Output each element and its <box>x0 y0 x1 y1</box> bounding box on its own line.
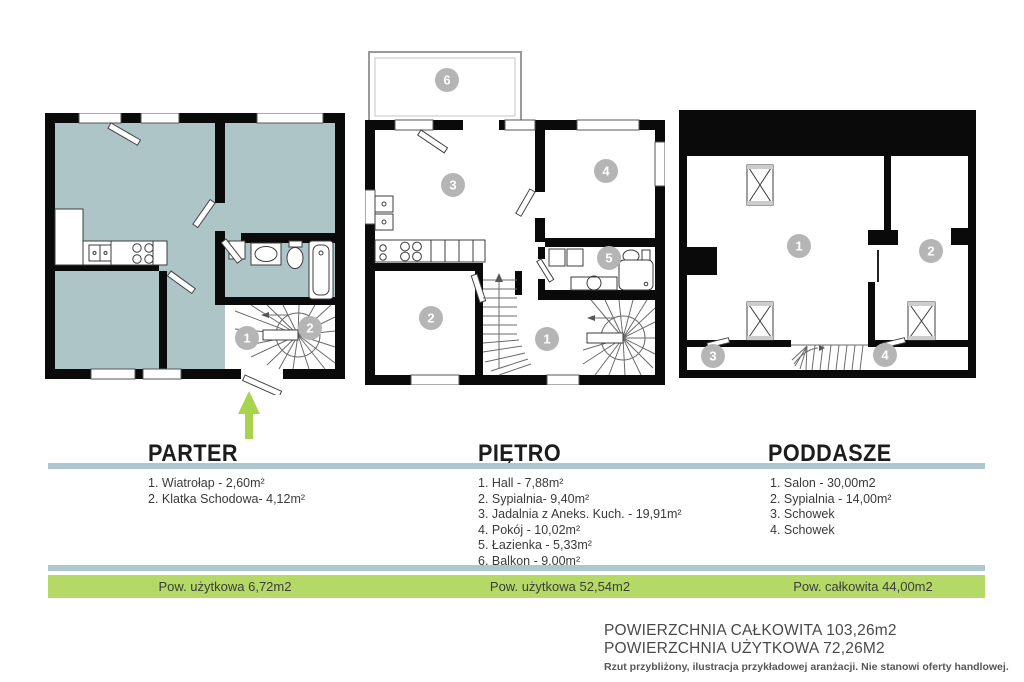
svg-text:2: 2 <box>306 321 313 336</box>
total-area-line: POWIERZCHNIA CAŁKOWITA 103,26m2 <box>604 622 1009 640</box>
room-list-item: 4. Schowek <box>770 523 892 539</box>
poddasze-plan-drawing: 1 2 3 4 <box>679 110 976 378</box>
room-marker-1: 1 <box>535 327 559 351</box>
room-list-item: 4. Pokój - 10,02m² <box>478 523 682 539</box>
divider-bar-top <box>48 463 985 469</box>
room-marker-1: 1 <box>235 326 259 350</box>
svg-text:3: 3 <box>449 178 456 193</box>
room-marker-2: 2 <box>919 239 943 263</box>
room-list-item: 5. Łazienka - 5,33m² <box>478 538 682 554</box>
room-list-item: 3. Schowek <box>770 507 892 523</box>
divider-bar-bottom <box>48 565 985 571</box>
disclaimer-text: Rzut przybliżony, ilustracja przykładowe… <box>604 661 1009 673</box>
totals-block: POWIERZCHNIA CAŁKOWITA 103,26m2 POWIERZC… <box>604 622 1009 673</box>
usable-area-line: POWIERZCHNIA UŻYTKOWA 72,26M2 <box>604 640 1009 658</box>
room-marker-2: 2 <box>419 306 443 330</box>
room-marker-3: 3 <box>701 344 725 368</box>
svg-text:1: 1 <box>243 331 250 346</box>
svg-text:4: 4 <box>881 348 889 363</box>
pietro-room-list: 1. Hall - 7,88m² 2. Sypialnia- 9,40m² 3.… <box>478 476 682 570</box>
parter-plan-drawing: 1 2 <box>45 113 345 395</box>
poddasze-area-label: Pow. całkowita 44,00m2 <box>793 575 932 598</box>
parter-room-list: 1. Wiatrołap - 2,60m² 2. Klatka Schodowa… <box>148 476 305 507</box>
area-summary-bar: Pow. użytkowa 6,72m2 Pow. użytkowa 52,54… <box>48 575 985 598</box>
room-list-item: 2. Sypialnia - 14,00m² <box>770 492 892 508</box>
room-list-item: 3. Jadalnia z Aneks. Kuch. - 19,91m² <box>478 507 682 523</box>
room-marker-3: 3 <box>441 173 465 197</box>
entrance-arrow-icon <box>237 391 261 439</box>
pietro-plan-drawing: 6 3 4 5 2 1 <box>365 50 665 385</box>
parter-area-label: Pow. użytkowa 6,72m2 <box>159 575 292 598</box>
room-marker-5: 5 <box>597 246 621 270</box>
room-list-item: 1. Wiatrołap - 2,60m² <box>148 476 305 492</box>
room-list-item: 1. Salon - 30,00m2 <box>770 476 892 492</box>
room-marker-2: 2 <box>298 316 322 340</box>
pietro-area-label: Pow. użytkowa 52,54m2 <box>490 575 630 598</box>
room-marker-1: 1 <box>787 234 811 258</box>
svg-text:5: 5 <box>605 251 612 266</box>
room-marker-6: 6 <box>435 68 459 92</box>
room-marker-4: 4 <box>594 159 618 183</box>
room-list-item: 2. Sypialnia- 9,40m² <box>478 492 682 508</box>
svg-text:6: 6 <box>443 73 450 88</box>
svg-text:1: 1 <box>543 332 550 347</box>
room-list-item: 1. Hall - 7,88m² <box>478 476 682 492</box>
svg-text:3: 3 <box>709 349 716 364</box>
svg-text:4: 4 <box>602 164 610 179</box>
pietro-floor-plan: 6 3 4 5 2 1 <box>365 50 665 385</box>
poddasze-room-list: 1. Salon - 30,00m2 2. Sypialnia - 14,00m… <box>770 476 892 538</box>
room-marker-4: 4 <box>873 343 897 367</box>
poddasze-floor-plan: 1 2 3 4 <box>679 110 976 378</box>
svg-text:2: 2 <box>427 311 434 326</box>
room-list-item: 2. Klatka Schodowa- 4,12m² <box>148 492 305 508</box>
floor-plan-sheet: 1 2 <box>0 0 1024 682</box>
svg-text:2: 2 <box>927 244 934 259</box>
parter-floor-plan: 1 2 <box>45 113 345 395</box>
svg-text:1: 1 <box>795 239 802 254</box>
